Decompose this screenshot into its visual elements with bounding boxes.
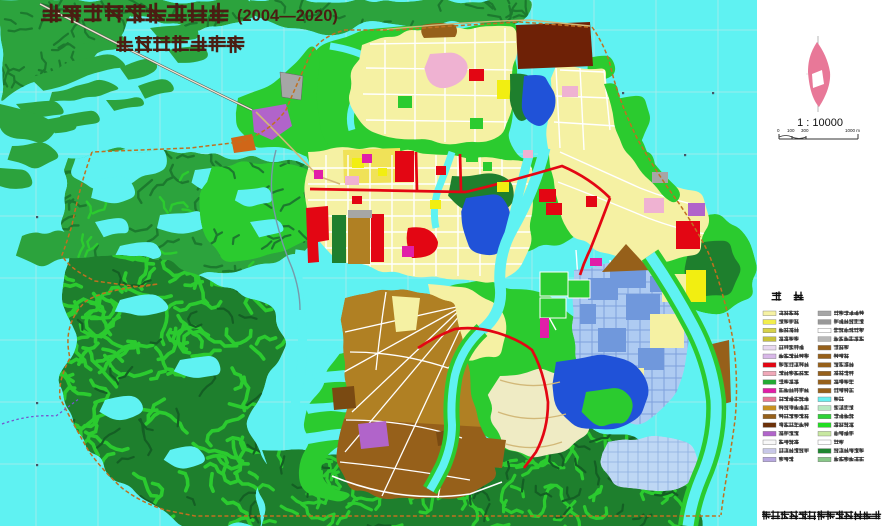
svg-text:100: 100 [787,128,795,133]
svg-text:300: 300 [801,128,809,133]
svg-text:1000 m: 1000 m [845,128,860,133]
svg-text:(2004—2020): (2004—2020) [237,7,338,25]
